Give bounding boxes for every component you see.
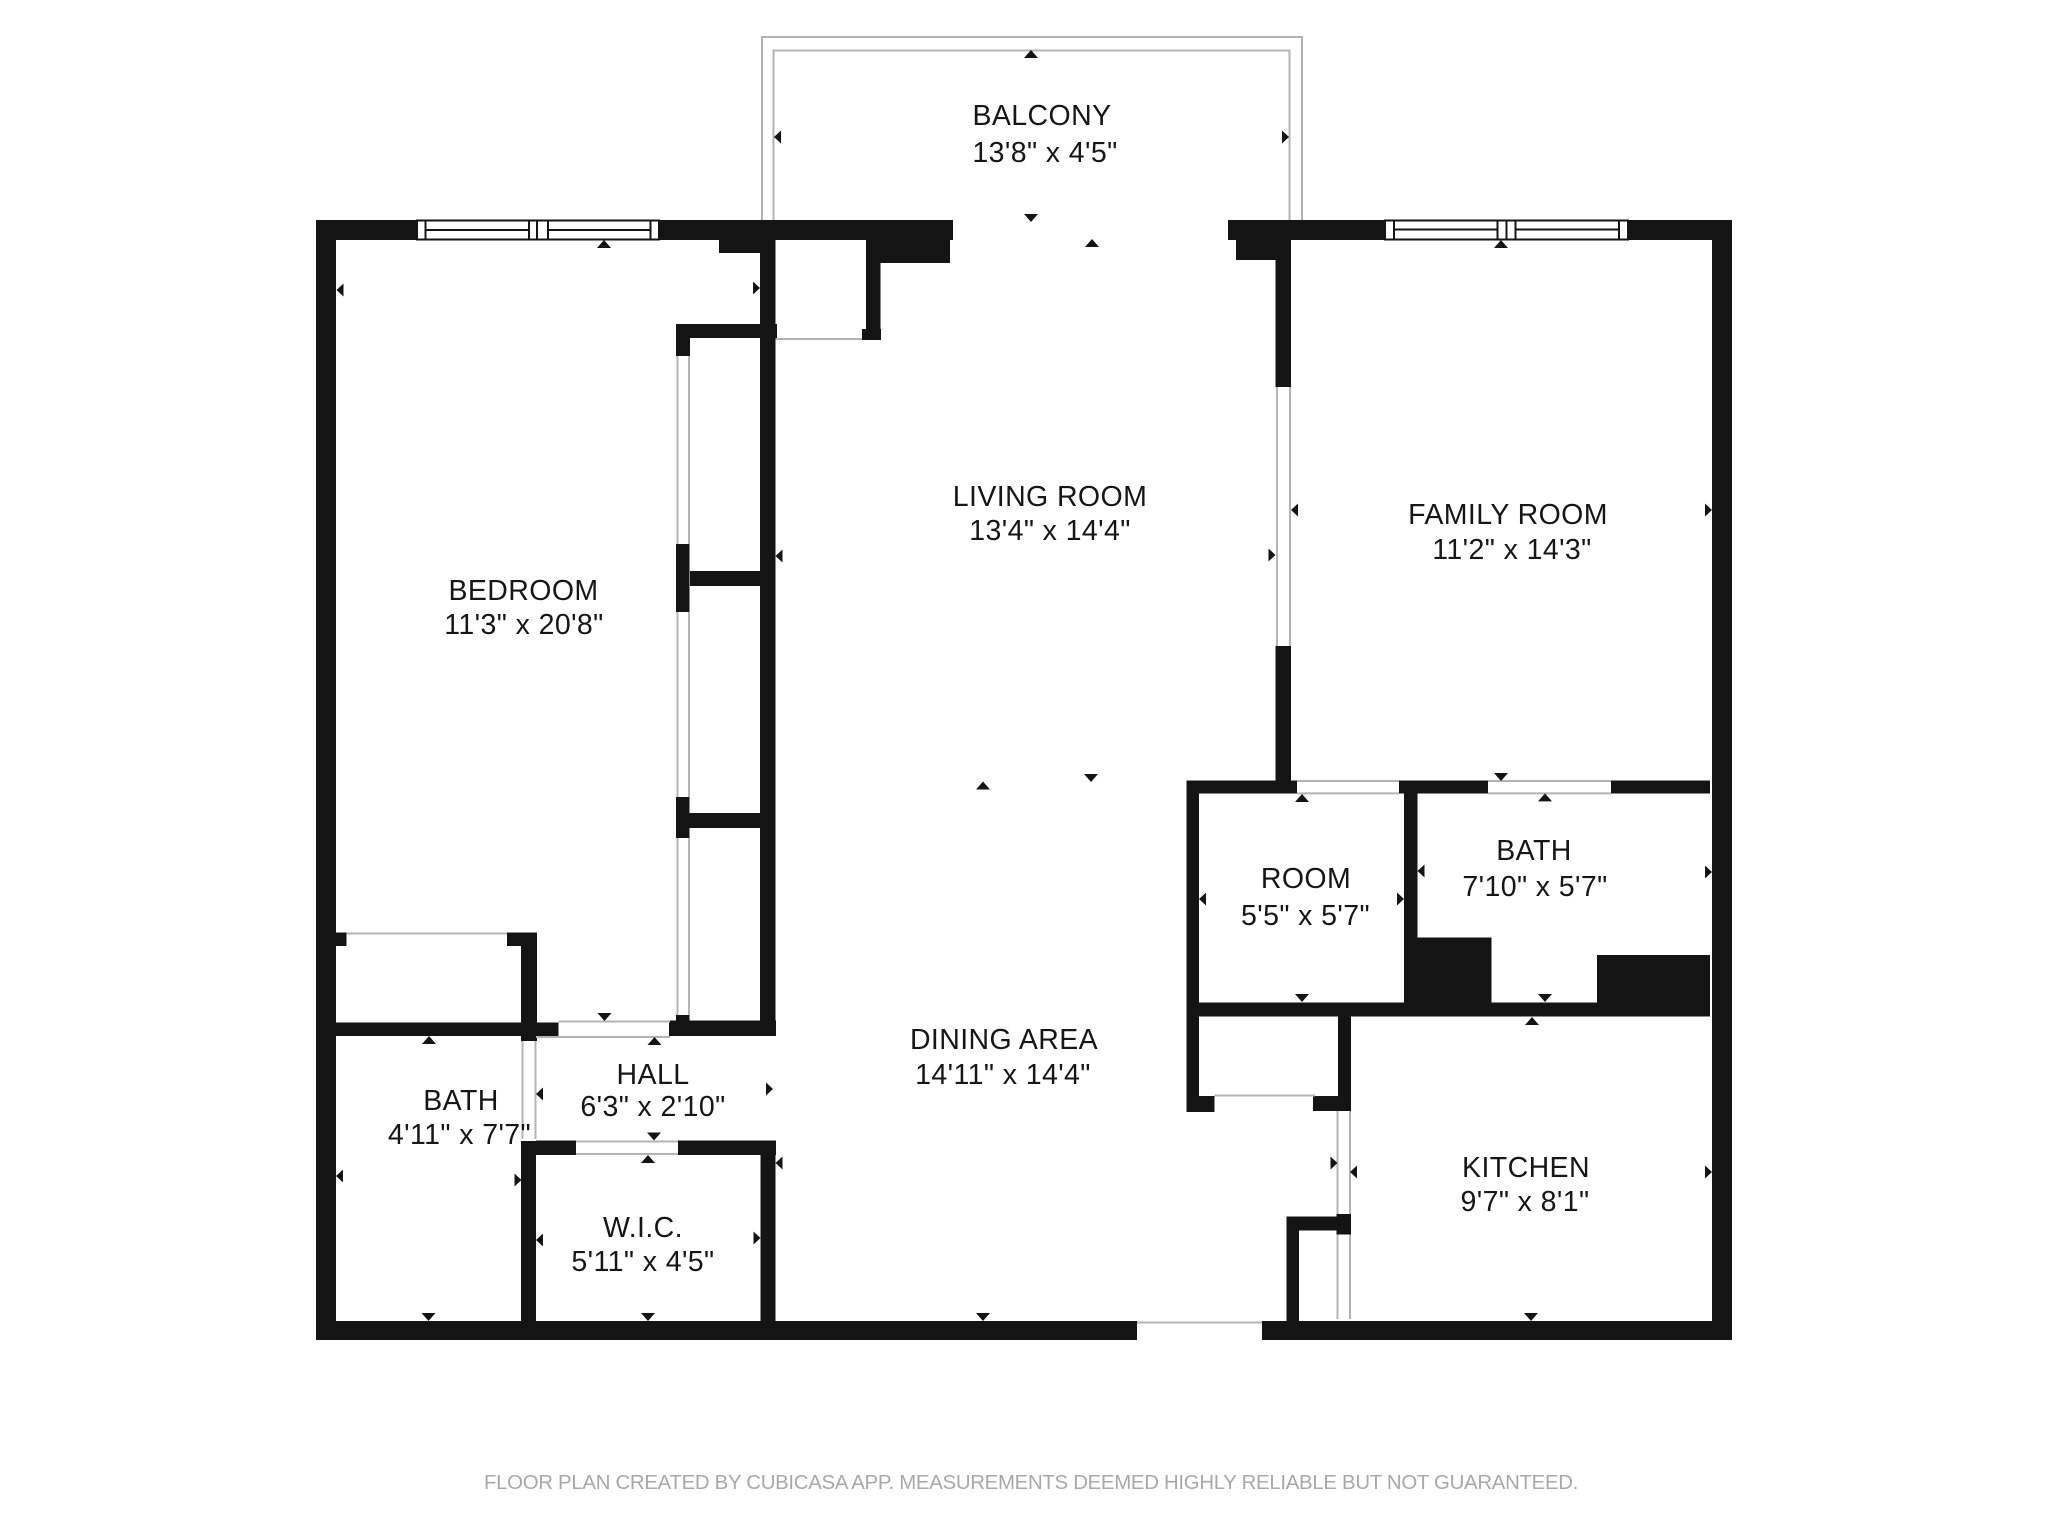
svg-text:ROOM: ROOM xyxy=(1261,863,1351,895)
svg-text:4'11" x 7'7": 4'11" x 7'7" xyxy=(388,1119,531,1151)
svg-text:FAMILY ROOM: FAMILY ROOM xyxy=(1408,499,1608,531)
svg-text:5'11" x 4'5": 5'11" x 4'5" xyxy=(571,1246,714,1278)
svg-text:7'10" x 5'7": 7'10" x 5'7" xyxy=(1462,871,1607,903)
svg-text:DINING AREA: DINING AREA xyxy=(910,1024,1098,1056)
svg-text:KITCHEN: KITCHEN xyxy=(1462,1152,1590,1184)
svg-text:11'2" x 14'3": 11'2" x 14'3" xyxy=(1432,534,1591,566)
svg-text:BALCONY: BALCONY xyxy=(972,100,1111,132)
svg-text:5'5" x 5'7": 5'5" x 5'7" xyxy=(1241,900,1370,932)
svg-text:9'7" x 8'1": 9'7" x 8'1" xyxy=(1460,1186,1589,1218)
svg-text:BATH: BATH xyxy=(423,1085,499,1117)
svg-text:FLOOR PLAN CREATED BY CUBICASA: FLOOR PLAN CREATED BY CUBICASA APP. MEAS… xyxy=(484,1472,1578,1494)
svg-text:W.I.C.: W.I.C. xyxy=(603,1212,683,1244)
svg-text:14'11" x 14'4": 14'11" x 14'4" xyxy=(915,1059,1091,1091)
svg-text:LIVING ROOM: LIVING ROOM xyxy=(953,481,1147,513)
svg-text:BEDROOM: BEDROOM xyxy=(448,575,598,607)
svg-text:BATH: BATH xyxy=(1496,835,1572,867)
svg-text:13'4" x 14'4": 13'4" x 14'4" xyxy=(969,515,1131,547)
svg-text:13'8" x 4'5": 13'8" x 4'5" xyxy=(972,137,1117,169)
svg-text:11'3" x 20'8": 11'3" x 20'8" xyxy=(444,609,603,641)
svg-text:HALL: HALL xyxy=(617,1059,690,1091)
svg-text:6'3" x 2'10": 6'3" x 2'10" xyxy=(580,1091,725,1123)
